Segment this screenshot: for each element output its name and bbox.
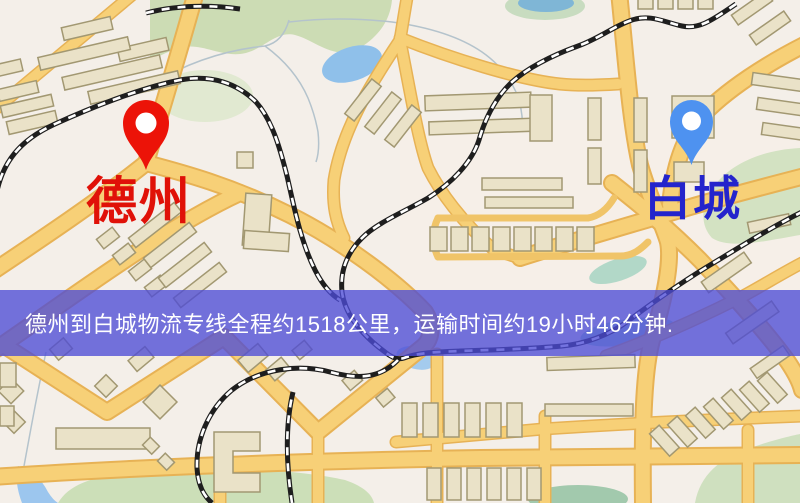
- destination-city-label: 白城: [644, 177, 742, 224]
- destination-pin-hole: [682, 112, 701, 131]
- origin-pin-icon: [121, 99, 171, 174]
- destination-pin-body: [670, 100, 713, 165]
- destination-pin-icon: [668, 99, 715, 169]
- base-map: [0, 0, 800, 503]
- origin-city-label: 德州: [86, 178, 192, 229]
- origin-pin-body: [123, 100, 169, 170]
- route-info-text: 德州到白城物流专线全程约1518公里，运输时间约19小时46分钟.: [0, 307, 674, 339]
- origin-pin-hole: [136, 113, 157, 134]
- map-screenshot: 德州 白城 德州到白城物流专线全程约1518公里，运输时间约19小时46分钟.: [0, 0, 800, 503]
- route-info-banner: 德州到白城物流专线全程约1518公里，运输时间约19小时46分钟.: [0, 290, 800, 356]
